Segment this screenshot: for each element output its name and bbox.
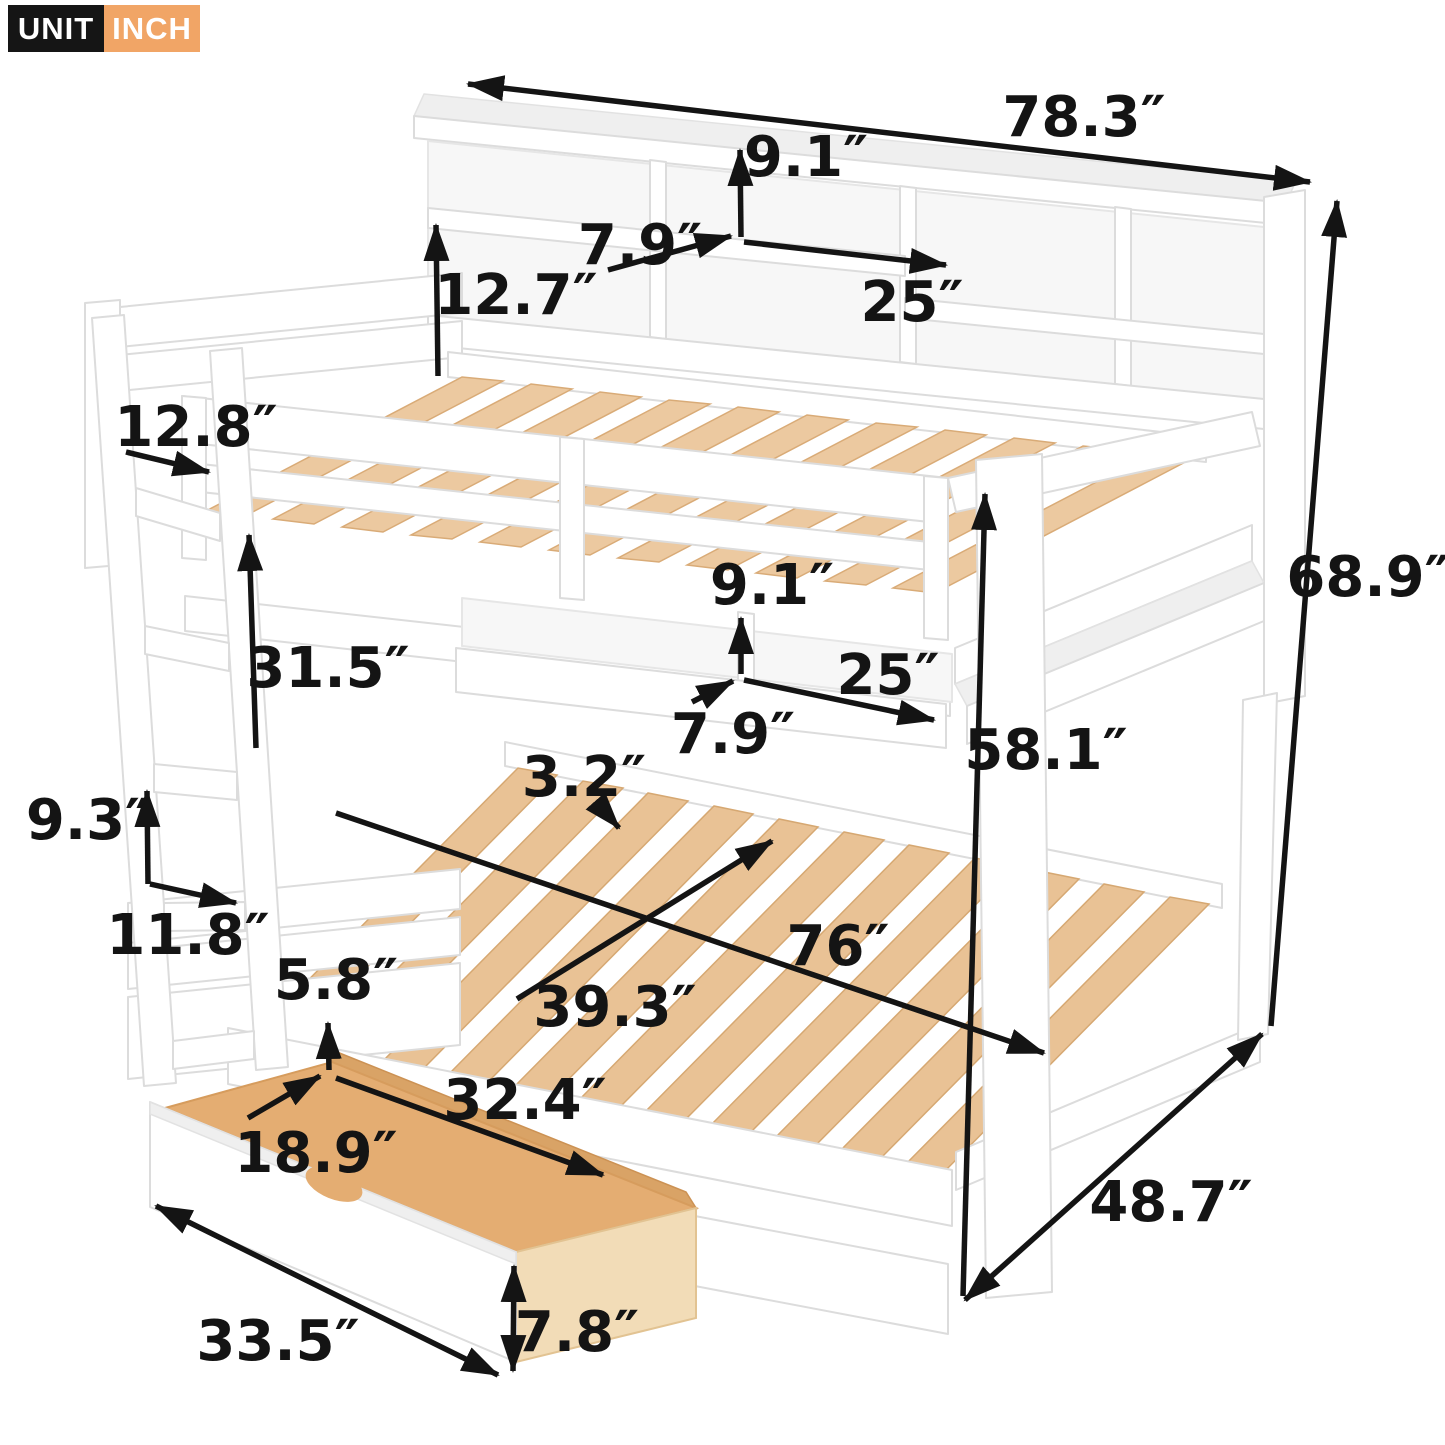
dim-label-mid-shelf-height: 9.1″	[710, 553, 834, 618]
dim-arrow-drawer-inner-height	[328, 1023, 329, 1070]
unit-badge-label: UNIT	[8, 5, 104, 52]
dim-label-mid-shelf-depth: 7.9″	[671, 702, 795, 767]
bunk-bed-diagram-canvas: 78.3″ 9.1″ 7.9″ 25″ 12.7″ 12.8″	[0, 0, 1445, 1445]
dim-label-drawer-length: 33.5″	[196, 1309, 359, 1374]
dim-label-bookcase-height: 12.7″	[434, 263, 597, 328]
dim-label-drawer-inner-height: 5.8″	[274, 948, 398, 1013]
dim-label-top-shelf-width: 25″	[861, 270, 964, 335]
dim-label-drawer-inner-width: 18.9″	[234, 1121, 397, 1186]
unit-badge-value: INCH	[104, 5, 200, 52]
dim-label-bunk-clearance: 31.5″	[246, 636, 409, 701]
unit-badge: UNIT INCH	[8, 5, 200, 52]
product-dimension-diagram: UNIT INCH	[0, 0, 1445, 1445]
dim-label-overall-height: 68.9″	[1286, 545, 1445, 610]
dim-arrow-drawer-front-height	[513, 1266, 514, 1371]
dim-label-ladder-rung-spacing: 9.3″	[26, 788, 150, 853]
dim-label-overall-depth: 48.7″	[1089, 1170, 1252, 1235]
dim-label-bed-width: 39.3″	[533, 975, 696, 1040]
dim-label-base-clearance: 11.8″	[106, 903, 269, 968]
dim-label-overall-length: 78.3″	[1002, 85, 1165, 150]
dim-label-slat-gap: 3.2″	[522, 745, 646, 810]
dim-label-top-shelf-height: 9.1″	[744, 125, 868, 190]
dim-bunk-clearance: 31.5″	[246, 535, 409, 748]
right-front-post	[976, 454, 1052, 1298]
dim-label-rail-height: 58.1″	[964, 718, 1127, 783]
dim-label-drawer-front-height: 7.8″	[515, 1300, 639, 1365]
dim-label-drawer-inner-length: 32.4″	[443, 1068, 606, 1133]
dim-arrow-top-shelf-height	[740, 150, 741, 237]
dim-label-bed-length: 76″	[787, 914, 890, 979]
dim-label-headboard-depth: 12.8″	[114, 395, 277, 460]
dim-label-mid-shelf-width: 25″	[837, 643, 940, 708]
